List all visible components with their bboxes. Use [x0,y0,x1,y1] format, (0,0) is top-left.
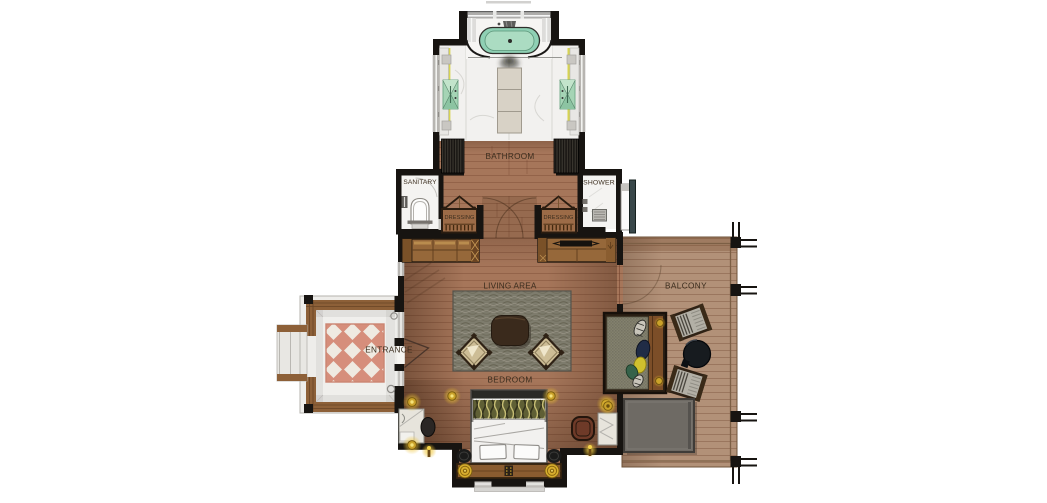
svg-text:BEDROOM: BEDROOM [487,376,532,385]
svg-text:DRESSING: DRESSING [444,215,474,221]
svg-text:BATHROOM: BATHROOM [485,152,534,161]
svg-text:BALCONY: BALCONY [665,282,707,291]
svg-text:SHOWER: SHOWER [583,180,615,187]
svg-text:ENTRANCE: ENTRANCE [365,346,413,355]
svg-text:SANITARY: SANITARY [403,179,437,186]
svg-text:LIVING AREA: LIVING AREA [483,282,537,291]
svg-text:DRESSING: DRESSING [543,215,573,221]
